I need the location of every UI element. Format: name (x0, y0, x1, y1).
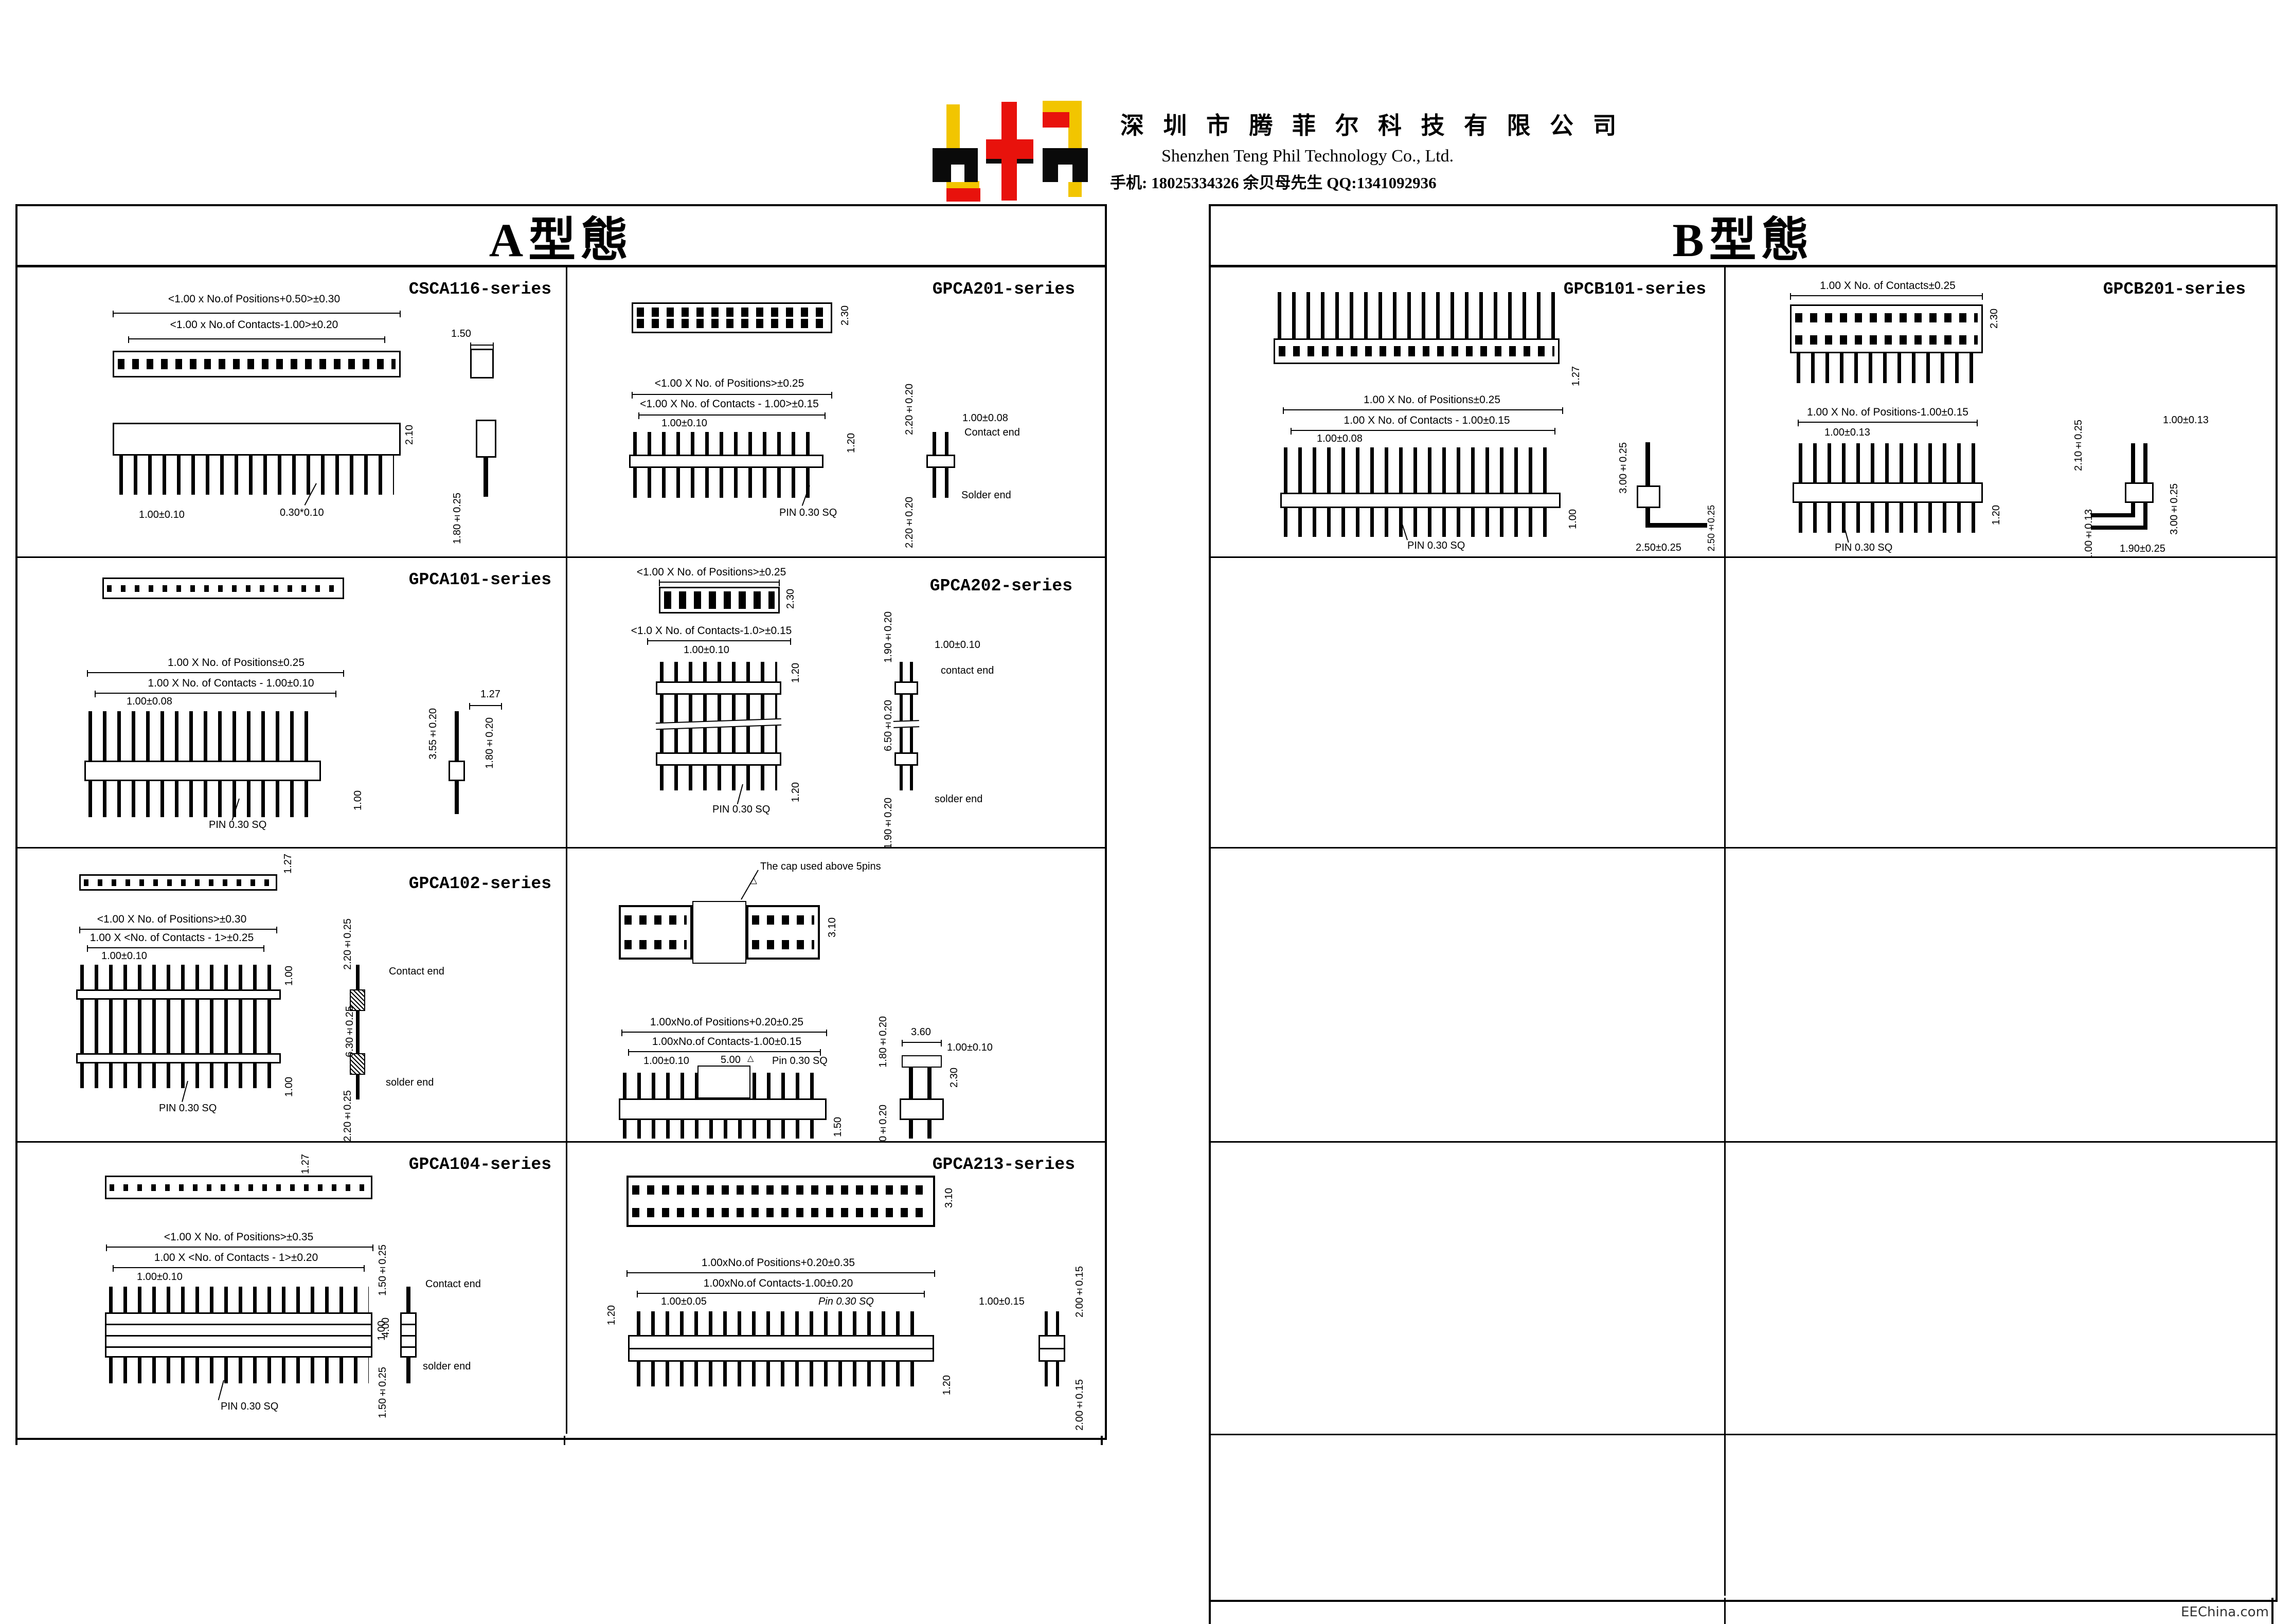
side-view-pin (900, 766, 903, 790)
dim-pin-label: 0.30*0.10 (280, 507, 324, 518)
cell-gpca210: The cap used above 5pins △ 3.10 1.00xNo.… (567, 849, 1101, 1141)
front-view-body-bottom (76, 1053, 281, 1063)
dim-310-label: 3.10 (944, 1188, 954, 1208)
dim-contacts-label: <1.0 X No. of Contacts-1.0>±0.15 (629, 625, 794, 637)
side-view-pin (455, 711, 459, 761)
dim-positions-label: 1.00 X No. of Positions±0.25 (128, 657, 344, 669)
dim-pitch-label: 1.00±0.10 (137, 1271, 183, 1283)
side-view-body (400, 1312, 417, 1358)
contact-end-label: Contact end (425, 1278, 481, 1290)
side-view-body (449, 761, 465, 781)
dim-200-bot-label: 2.00±0.15 (1075, 1379, 1085, 1431)
watermark: EEChina.com (2181, 1604, 2269, 1620)
side-view-cap (902, 1055, 942, 1068)
side-view-pin (2143, 443, 2147, 482)
front-view-body-top (656, 681, 781, 695)
top-view-pins (1278, 292, 1555, 338)
dim-400-label: 4.00 (381, 1318, 391, 1338)
side-view-body (2125, 482, 2154, 503)
front-view-pins-bottom (633, 468, 819, 498)
dim-230-label: 2.30 (840, 305, 850, 326)
side-view-pin (933, 468, 936, 498)
dim-127-label: 1.27 (480, 689, 500, 700)
dim-100-label: 1.00±0.08 (962, 412, 1008, 424)
dimension-line (95, 693, 336, 694)
dim-190-top-label: 1.90±0.20 (883, 611, 893, 663)
top-view-left-block (619, 905, 692, 960)
front-view-body-bottom (656, 752, 781, 766)
dimension-line (621, 1032, 827, 1033)
dimension-line (87, 672, 344, 673)
dim-pitch-label: 1.00±0.10 (684, 644, 729, 656)
dim-180-bot-label: 1.80±0.20 (878, 1105, 888, 1141)
dim-127-label: 1.27 (300, 1154, 311, 1174)
dim-pitch-label: 1.00±0.08 (127, 696, 172, 707)
section-b-title: B型態 (1211, 206, 2276, 267)
side-view-body (926, 455, 955, 468)
top-view (105, 1176, 372, 1199)
dim-190-bot-label: 1.90±0.20 (883, 798, 893, 847)
dim-190-label: 1.90±0.25 (2120, 543, 2165, 554)
dim-120-top-label: 1.20 (791, 663, 801, 683)
dim-120-left-label: 1.20 (606, 1305, 617, 1325)
dimension-line (659, 582, 780, 583)
dim-180-label: 1.80±0.25 (452, 493, 462, 544)
pin-note-label: Pin 0.30 SQ (818, 1296, 874, 1307)
dim-100-top-label: 1.00 (284, 966, 294, 986)
dim-pitch-label: 1.00±0.10 (139, 509, 185, 520)
front-view-body (1793, 482, 1983, 503)
side-view-pin (356, 965, 360, 989)
front-view-pins-top (633, 432, 819, 455)
dim-630-label: 6.30±0.25 (345, 1006, 355, 1057)
dim-230-label: 2.30 (1989, 309, 1999, 329)
side-view-pin (909, 1120, 913, 1139)
cell-gpca201: GPCA201-series 2.30 <1.00 X No. of Posit… (567, 267, 1101, 556)
logo-shape (951, 165, 964, 182)
top-view-cap (692, 901, 746, 964)
solder-end-label: solder end (935, 793, 982, 805)
front-view-pins-bottom (88, 781, 317, 817)
dim-contacts-label: 1.00xNo.of Contacts-1.00±0.15 (639, 1036, 814, 1048)
logo-shape (946, 188, 980, 202)
dim-230-label: 2.30 (949, 1068, 959, 1088)
top-view (626, 1176, 935, 1227)
side-view-pin-bend-h (1645, 523, 1707, 528)
dim-180-top-label: 1.80±0.20 (878, 1016, 888, 1068)
logo-shape (1058, 165, 1072, 182)
dim-230-label: 2.30 (785, 589, 796, 609)
dimension-line (469, 705, 502, 706)
side-view-body (470, 349, 494, 378)
dim-100-top-label: 1.00±0.13 (2163, 414, 2209, 426)
dim-100-bot-label: 1.00±0.13 (2084, 509, 2094, 556)
dimension-line (128, 338, 385, 339)
dimension-line (632, 394, 832, 395)
series-title: GPCA202-series (930, 576, 1072, 596)
dimension-line (637, 1293, 925, 1294)
dimension-line (626, 1272, 935, 1273)
dim-positions-label: <1.00 x No.of Positions+0.50>±0.30 (136, 293, 372, 305)
grid-line (1211, 1141, 2276, 1143)
front-view-body (113, 423, 401, 456)
dimension-line (1790, 295, 1983, 296)
dim-120-label: 1.20 (1991, 505, 2001, 525)
front-view-pins-top (1284, 447, 1556, 493)
dim-positions-label: <1.00 X No. of Positions>±0.35 (128, 1231, 349, 1243)
datasheet-page: 深 圳 市 腾 菲 尔 科 技 有 限 公 司 Shenzhen Teng Ph… (0, 0, 2292, 1624)
dim-250-v-label: 2.50±0.25 (1707, 505, 1716, 551)
dim-contacts-label: 1.00 X <No. of Contacts - 1>±0.25 (84, 932, 259, 944)
side-view-claw (927, 1068, 932, 1098)
dim-positions-label: 1.00 X No. of Positions±0.25 (1321, 394, 1543, 406)
dim-220-bot-label: 2.20±0.20 (904, 497, 915, 548)
dim-100-label: 1.00±0.10 (947, 1042, 993, 1053)
cell-gpca202: <1.00 X No. of Positions>±0.25 GPCA202-s… (567, 558, 1101, 847)
side-view-pin-up (1645, 442, 1650, 485)
grid-line (1211, 1434, 2276, 1435)
company-name-en: Shenzhen Teng Phil Technology Co., Ltd. (1161, 147, 1454, 166)
top-view (113, 351, 401, 377)
dim-355-label: 3.55±0.20 (428, 708, 438, 760)
dim-contacts-label: 1.00 X No. of Contacts - 1.00±0.10 (118, 677, 344, 689)
dim-120-label: 1.20 (846, 433, 856, 453)
series-title: GPCB101-series (1564, 280, 1706, 299)
dim-positions-label: <1.00 X No. of Positions>±0.25 (634, 566, 789, 578)
solder-end-label: solder end (423, 1361, 471, 1372)
grid-stub (1209, 1598, 1211, 1624)
dim-pitch-label: 1.00±0.05 (661, 1296, 707, 1307)
side-view-pin (910, 766, 913, 790)
grid-stub (564, 1436, 565, 1445)
dim-100-label: 1.00±0.15 (979, 1296, 1025, 1307)
section-b-table: B型態 GPCB101-series 1.27 1.00 X No. of Po… (1209, 204, 2278, 1602)
side-view-pin (1045, 1311, 1048, 1335)
front-view-pins-top (80, 965, 277, 989)
side-view-body (1038, 1335, 1065, 1362)
dim-360-label: 3.60 (911, 1026, 931, 1038)
logo-shape (986, 139, 1033, 159)
side-view-pin (356, 1011, 360, 1053)
cap-note-label: The cap used above 5pins (760, 861, 881, 872)
cell-gpca101: GPCA101-series 1.00 X No. of Positions±0… (17, 558, 566, 847)
side-view-pin (455, 781, 459, 814)
dimension-line (638, 414, 826, 416)
dim-200-top-label: 2.00±0.15 (1075, 1266, 1085, 1318)
front-view-pins-top (1799, 443, 1976, 482)
front-view-pins-bottom (109, 1358, 369, 1383)
front-view-body (84, 761, 321, 781)
dim-100-label: 1.00 (353, 790, 363, 810)
dim-210-label: 2.10 (404, 425, 415, 445)
dimension-line (113, 1267, 365, 1268)
dimension-line (647, 640, 791, 641)
side-view-pin (933, 432, 936, 455)
dim-127-label: 1.27 (1571, 366, 1581, 386)
grid-line (1211, 847, 2276, 849)
dim-contacts-label: 1.00 X No. of Contacts - 1.00±0.15 (1306, 414, 1548, 426)
pin-note-label: PIN 0.30 SQ (209, 819, 266, 831)
side-view-claw (909, 1068, 913, 1098)
side-view-pin (406, 1358, 410, 1383)
dim-120-bot-label: 1.20 (791, 782, 801, 802)
dimension-line (1291, 430, 1555, 431)
series-title: GPCA213-series (933, 1155, 1075, 1174)
dim-pitch-label: 1.00±0.10 (101, 950, 147, 962)
front-view-body (1280, 493, 1561, 508)
front-view-pins-long (80, 1000, 277, 1053)
dim-310-label: 3.10 (827, 917, 837, 937)
front-view-pins-bottom (80, 1063, 277, 1088)
section-a-table: A型態 CSCA116-series <1.00 x No.of Positio… (15, 204, 1107, 1440)
dim-contacts-label: <1.00 X No. of Contacts - 1.00>±0.15 (634, 398, 825, 410)
pin-note-label: PIN 0.30 SQ (779, 507, 837, 518)
dimension-line (470, 345, 494, 346)
dim-300-label: 3.00±0.25 (1618, 442, 1628, 494)
contact-end-label: contact end (941, 665, 994, 676)
side-view-pin (1056, 1311, 1059, 1335)
front-view-pins-top (637, 1311, 925, 1335)
contact-end-label: Contact end (389, 966, 444, 977)
front-view-pins-top (660, 662, 777, 681)
dim-150-bot-label: 1.50±0.25 (378, 1367, 388, 1418)
grid-stub (2271, 1598, 2273, 1624)
side-view-pin (406, 1287, 410, 1312)
dim-positions-label: 1.00 X No. of Positions-1.00±0.15 (1790, 406, 1985, 418)
top-view-pins (1797, 353, 1977, 383)
dimension-line (628, 1051, 821, 1052)
dim-500-label: 5.00 (721, 1054, 741, 1066)
dim-210-label: 2.10±0.25 (2073, 420, 2084, 471)
dimension-line (106, 1247, 373, 1248)
dim-180-label: 1.80±0.20 (485, 717, 495, 769)
side-view-pin (927, 1120, 932, 1139)
top-view (632, 302, 832, 333)
side-view2-pin (484, 458, 488, 497)
dim-250-h-label: 2.50±0.25 (1636, 542, 1681, 553)
dim-150-label: 1.50 (451, 328, 471, 339)
side-view-pin (900, 662, 903, 681)
revision-triangle-icon: △ (747, 1054, 754, 1063)
cell-gpcb201: 1.00 X No. of Contacts±0.25 GPCB201-seri… (1726, 267, 2271, 556)
front-view-cap (697, 1066, 750, 1098)
solder-end-label: Solder end (961, 490, 1011, 501)
front-view-pins-bottom (637, 1362, 925, 1386)
dim-pitch-label: 1.00±0.10 (661, 418, 707, 429)
company-name-cn: 深 圳 市 腾 菲 尔 科 技 有 限 公 司 (1120, 107, 1623, 141)
top-view (659, 587, 780, 613)
front-view-pins-top (88, 711, 317, 761)
side-view-pin (1045, 1362, 1048, 1386)
section-a-title: A型態 (17, 206, 1105, 267)
pin-note-label: PIN 0.30 SQ (159, 1103, 217, 1114)
dimension-line (902, 1042, 942, 1043)
top-view-body (1790, 304, 1983, 353)
dim-pitch-label: 1.00±0.13 (1824, 427, 1870, 438)
break-symbol (893, 720, 919, 728)
series-title: GPCA102-series (409, 874, 551, 893)
pin-note-label: PIN 0.30 SQ (712, 804, 770, 815)
dim-120-bot-label: 1.20 (942, 1375, 952, 1395)
series-title: GPCB201-series (2103, 280, 2246, 299)
series-title: GPCA101-series (409, 570, 551, 589)
side-view-pin (356, 1075, 360, 1099)
dimension-line (1798, 422, 1978, 423)
cell-csca116: CSCA116-series <1.00 x No.of Positions+0… (17, 267, 566, 556)
side-view-pin-bend-h (2091, 513, 2135, 517)
dim-positions-label: 1.00xNo.of Positions+0.20±0.25 (634, 1016, 819, 1028)
series-title: GPCA201-series (933, 280, 1075, 299)
front-view-body (619, 1098, 827, 1120)
cell-gpcb101: GPCB101-series 1.27 1.00 X No. of Positi… (1211, 267, 1724, 556)
side-view-body (1637, 485, 1660, 508)
top-view (102, 578, 344, 599)
logo-shape (1043, 112, 1069, 128)
dim-contacts-label: 1.00xNo.of Contacts-1.00±0.20 (665, 1277, 891, 1289)
grid-stub (1724, 1598, 1726, 1624)
dim-100-bot-label: 1.00 (284, 1077, 294, 1097)
dim-contacts-label: 1.00 X <No. of Contacts - 1>±0.20 (118, 1252, 354, 1264)
side-view-pin (910, 662, 913, 681)
contact-end-label: Contact end (964, 427, 1020, 438)
side-view2-body (476, 420, 496, 458)
dim-positions-label: <1.00 X No. of Positions>±0.30 (95, 913, 249, 925)
cell-gpca213: 3.10 GPCA213-series 1.00xNo.of Positions… (567, 1143, 1101, 1434)
dim-220-top-label: 2.20±0.25 (343, 918, 353, 970)
dim-positions-label: <1.00 X No. of Positions>±0.25 (639, 377, 819, 389)
dimension-line (113, 313, 401, 314)
front-view-pins (119, 456, 394, 495)
cell-gpca104: 1.27 GPCA104-series <1.00 X No. of Posit… (17, 1143, 566, 1434)
dim-contacts-label: <1.00 x No.of Contacts-1.00>±0.20 (149, 319, 360, 331)
company-contact: 手机: 18025334326 余贝母先生 QQ:1341092936 (1110, 170, 1437, 193)
dim-220-top-label: 2.20±0.20 (904, 384, 915, 435)
pin-note-label: PIN 0.30 SQ (221, 1401, 278, 1412)
dim-127-label: 1.27 (283, 854, 293, 874)
pin-note-label: PIN 0.30 SQ (1407, 540, 1465, 551)
top-view-body (1274, 338, 1560, 364)
side-view-pin (945, 432, 948, 455)
dim-contacts-label: 1.00 X No. of Contacts±0.25 (1787, 280, 1988, 292)
company-logo (923, 86, 1103, 202)
dim-pitch-label: 1.00±0.10 (643, 1055, 689, 1067)
series-title: CSCA116-series (409, 280, 551, 299)
grid-stub (1101, 1436, 1103, 1445)
front-view-body (629, 455, 823, 468)
side-view-pin-bend-h (2091, 526, 2147, 530)
front-view-pins-bottom (623, 1120, 822, 1139)
dim-positions-label: 1.00xNo.of Positions+0.20±0.35 (660, 1257, 897, 1269)
side-view-pin (945, 468, 948, 498)
dim-300-label: 3.00±0.25 (2169, 483, 2179, 535)
front-view-pins-bottom (1284, 508, 1556, 537)
grid-line (1211, 556, 2276, 558)
side-view-pin (2131, 443, 2135, 482)
side-view-pin (1056, 1362, 1059, 1386)
dim-pitch-label: 1.00±0.08 (1317, 433, 1363, 444)
pin-note-label: PIN 0.30 SQ (1835, 542, 1892, 553)
dim-220-bot-label: 2.20±0.25 (343, 1090, 353, 1141)
front-view-body (628, 1335, 934, 1362)
series-title: GPCA104-series (409, 1155, 551, 1174)
front-view-pins-bottom (1799, 503, 1976, 533)
dim-150-label: 1.50 (833, 1117, 843, 1137)
dim-100-label: 1.00 (1568, 509, 1578, 529)
grid-stub (15, 1436, 17, 1445)
side-view-body-top (894, 681, 918, 695)
front-view-body-top (76, 989, 281, 1000)
cell-gpca102: 1.27 GPCA102-series <1.00 X No. of Posit… (17, 849, 566, 1141)
dim-650-label: 6.50±0.20 (883, 700, 893, 751)
dim-150-top-label: 1.50±0.25 (378, 1244, 388, 1296)
front-view-body (105, 1312, 372, 1358)
top-view-right-block (746, 905, 820, 960)
front-view-pins-top (109, 1287, 369, 1312)
dimension-line (1283, 409, 1563, 410)
top-view (79, 874, 277, 891)
pin-note-label: Pin 0.30 SQ (772, 1055, 828, 1067)
dimension-line (87, 947, 264, 948)
side-view-body-bottom (894, 752, 918, 766)
front-view-pins-bottom (660, 766, 777, 790)
dimension-line (79, 929, 277, 930)
solder-end-label: solder end (386, 1077, 434, 1088)
side-view-body (900, 1098, 944, 1120)
dim-100-label: 1.00±0.10 (935, 639, 980, 651)
